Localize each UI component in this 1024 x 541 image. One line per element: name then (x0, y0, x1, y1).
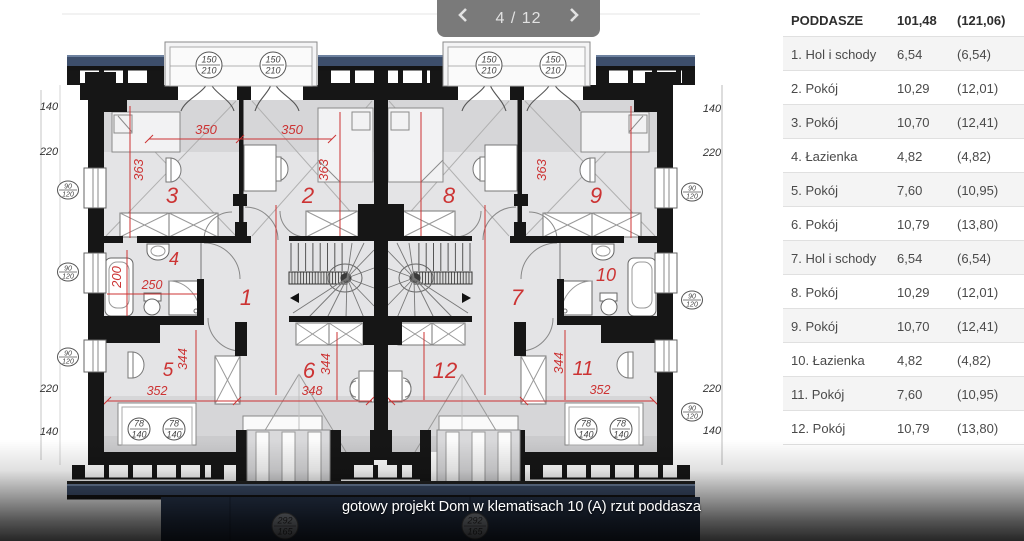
svg-text:250: 250 (141, 278, 163, 292)
svg-text:210: 210 (264, 66, 280, 76)
svg-text:6: 6 (303, 358, 316, 383)
svg-text:220: 220 (39, 146, 59, 158)
svg-text:78: 78 (616, 419, 626, 429)
svg-text:5: 5 (163, 360, 174, 381)
svg-text:90: 90 (64, 351, 72, 358)
svg-text:344: 344 (175, 348, 190, 370)
svg-text:140: 140 (578, 430, 593, 440)
svg-text:120: 120 (686, 194, 698, 201)
svg-text:140: 140 (613, 430, 628, 440)
svg-text:150: 150 (201, 55, 216, 65)
svg-text:363: 363 (131, 158, 146, 180)
svg-text:8: 8 (443, 183, 456, 208)
svg-text:78: 78 (581, 419, 591, 429)
svg-text:7: 7 (511, 285, 524, 310)
svg-text:78: 78 (134, 419, 144, 429)
svg-text:140: 140 (40, 101, 59, 113)
svg-text:4: 4 (169, 249, 179, 269)
svg-text:140: 140 (166, 430, 181, 440)
svg-text:344: 344 (318, 353, 333, 375)
svg-text:120: 120 (62, 274, 74, 281)
svg-text:1: 1 (240, 285, 252, 310)
svg-text:363: 363 (534, 158, 549, 180)
svg-text:11: 11 (573, 358, 594, 380)
svg-text:344: 344 (551, 352, 566, 374)
svg-text:220: 220 (702, 383, 722, 395)
svg-text:140: 140 (703, 103, 722, 115)
svg-text:140: 140 (40, 426, 59, 438)
svg-text:12: 12 (433, 358, 457, 383)
svg-text:352: 352 (590, 383, 611, 397)
svg-text:90: 90 (64, 266, 72, 273)
svg-text:200: 200 (109, 265, 124, 288)
svg-text:90: 90 (688, 294, 696, 301)
svg-text:140: 140 (131, 430, 146, 440)
svg-text:120: 120 (62, 192, 74, 199)
svg-text:350: 350 (195, 122, 217, 137)
svg-text:10: 10 (596, 265, 616, 285)
svg-text:2: 2 (301, 183, 314, 208)
svg-text:150: 150 (545, 55, 560, 65)
svg-text:363: 363 (316, 158, 331, 180)
svg-text:9: 9 (590, 183, 602, 208)
svg-text:150: 150 (481, 55, 496, 65)
svg-text:90: 90 (64, 184, 72, 191)
svg-text:140: 140 (703, 425, 722, 437)
svg-text:120: 120 (686, 302, 698, 309)
svg-text:350: 350 (281, 122, 303, 137)
svg-text:352: 352 (147, 384, 168, 398)
svg-text:90: 90 (688, 406, 696, 413)
svg-text:3: 3 (166, 183, 179, 208)
svg-text:90: 90 (688, 186, 696, 193)
svg-text:120: 120 (62, 359, 74, 366)
svg-text:210: 210 (200, 66, 216, 76)
svg-text:210: 210 (544, 66, 560, 76)
svg-text:220: 220 (702, 147, 722, 159)
svg-text:210: 210 (480, 66, 496, 76)
svg-text:120: 120 (686, 414, 698, 421)
svg-text:78: 78 (169, 419, 179, 429)
svg-text:150: 150 (265, 55, 280, 65)
svg-text:220: 220 (39, 383, 59, 395)
svg-text:348: 348 (302, 384, 323, 398)
